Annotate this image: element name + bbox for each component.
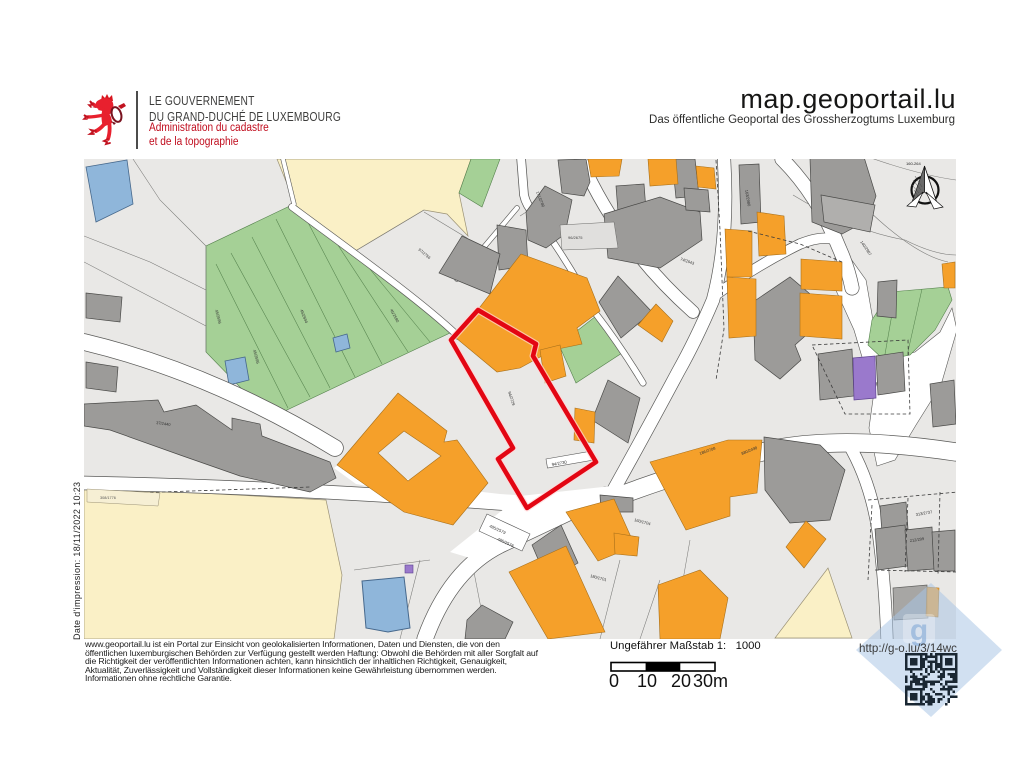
svg-text:160-264: 160-264 xyxy=(906,161,921,166)
svg-text:96/2675: 96/2675 xyxy=(568,235,583,240)
svg-text:308/1776: 308/1776 xyxy=(100,496,116,500)
